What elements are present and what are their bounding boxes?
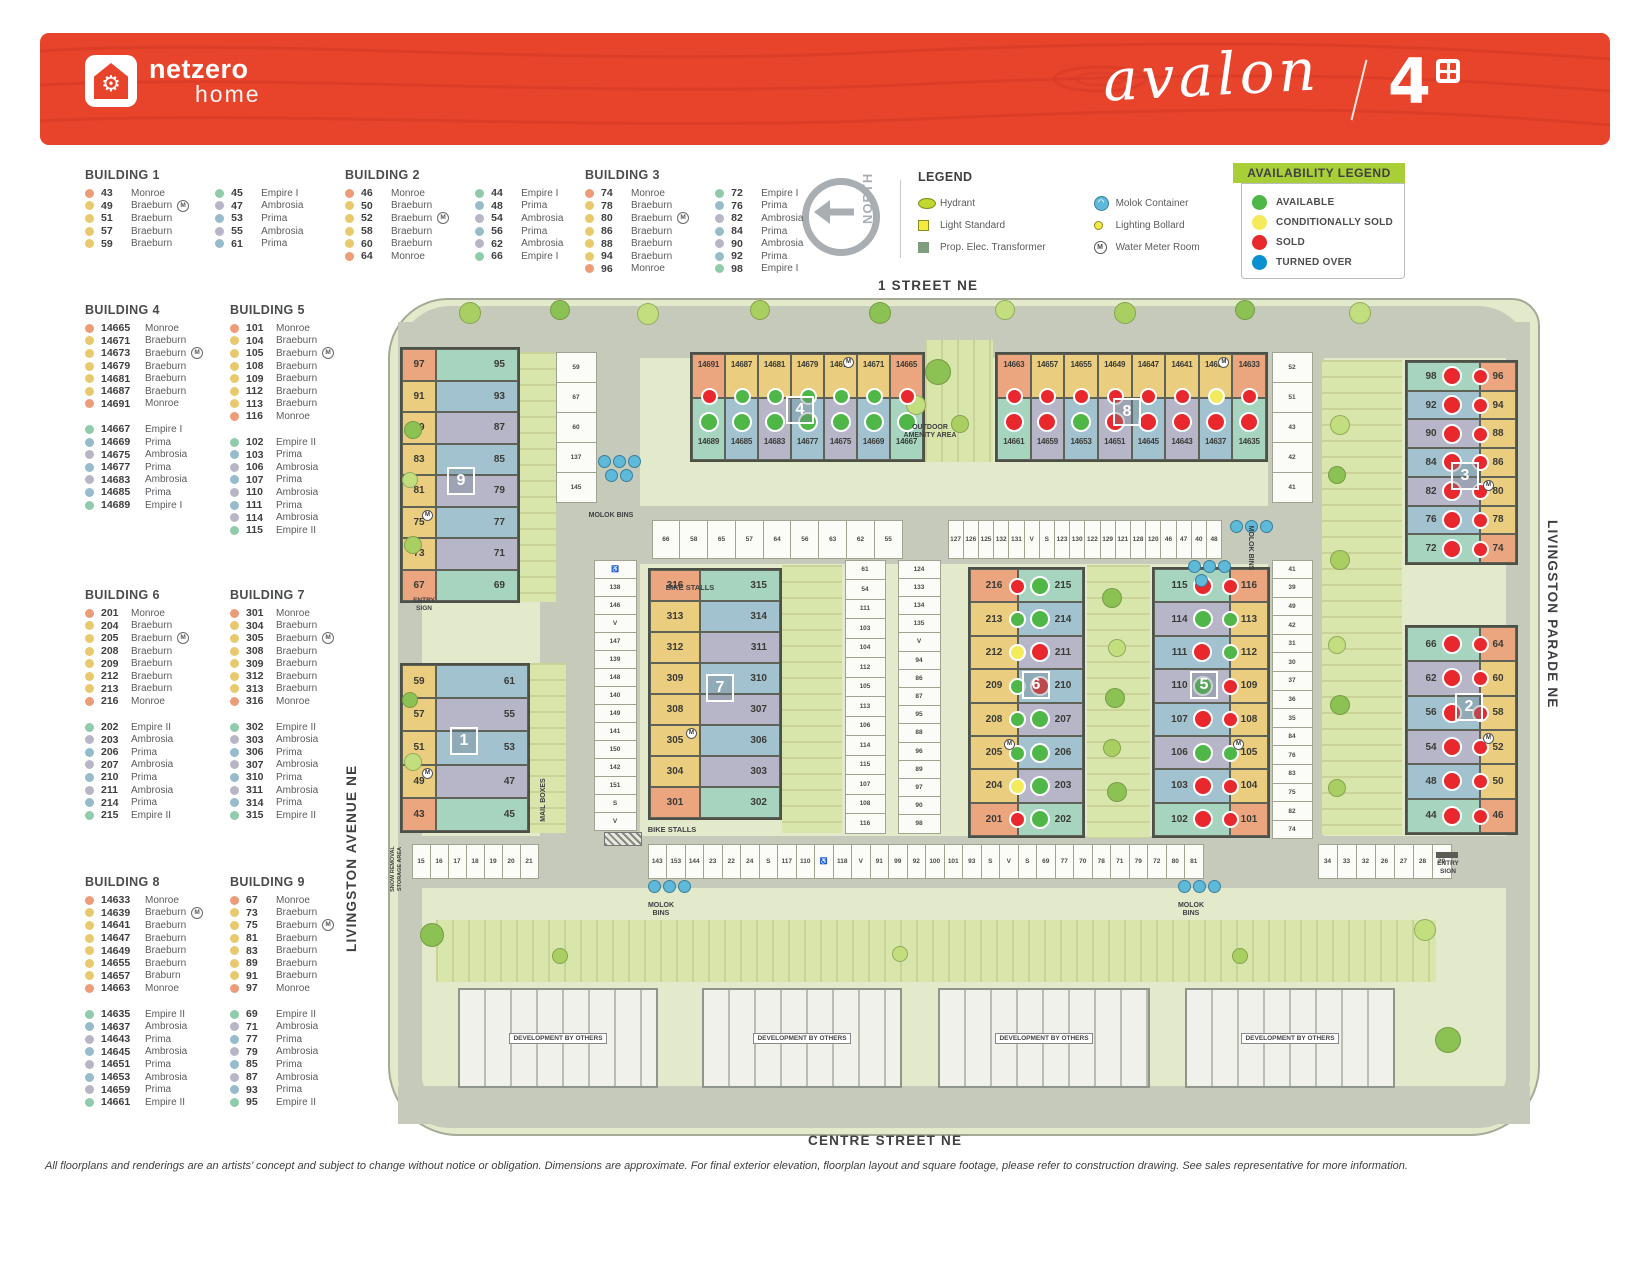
parking-stall: 43 xyxy=(1272,412,1313,443)
yard xyxy=(520,352,556,602)
parking-stall: 80 xyxy=(1166,844,1186,879)
molok-bin-icon xyxy=(1193,880,1206,893)
parking-stall: 97 xyxy=(898,778,941,797)
map-unit[interactable]: 86 xyxy=(1480,448,1516,477)
molok-bin-icon xyxy=(605,469,618,482)
map-unit[interactable]: 45 xyxy=(436,798,528,831)
parking-stall: 47 xyxy=(1176,520,1192,559)
map-unit[interactable]: 109 xyxy=(1230,669,1268,702)
parking-strip: 596760137145 xyxy=(556,352,596,502)
parking-stall: 103 xyxy=(845,618,886,639)
parking-stall: 79 xyxy=(1129,844,1149,879)
map-unit[interactable]: 201 xyxy=(970,803,1018,836)
map-unit[interactable]: 46 xyxy=(1480,799,1516,833)
status-dot xyxy=(1030,609,1050,629)
tree xyxy=(459,302,481,324)
map-unit[interactable]: 313 xyxy=(650,601,700,632)
parking-stall: 100 xyxy=(925,844,945,879)
parking-strip: 15161718192021 xyxy=(412,844,538,878)
parking-stall: 15 xyxy=(412,844,431,879)
site-plan-page: ⚙ netzero home avalon 4 NORTH LEGEND Hyd… xyxy=(0,0,1650,1275)
molok-bin-icon xyxy=(1230,520,1243,533)
map-unit[interactable]: 108 xyxy=(1230,703,1268,736)
map-unit[interactable]: 112 xyxy=(1230,636,1268,669)
parking-stall: 81 xyxy=(1184,844,1204,879)
parking-stall: 113 xyxy=(845,696,886,717)
tree xyxy=(402,472,418,488)
parking-stall: 17 xyxy=(448,844,467,879)
map-unit[interactable]: 47 xyxy=(436,765,528,798)
building-7-chip: 7 xyxy=(706,674,734,702)
map-unit[interactable]: 72 xyxy=(1407,534,1480,563)
status-dot xyxy=(1138,412,1158,432)
map-unit[interactable]: 14655 xyxy=(1064,354,1098,398)
map-unit[interactable]: 14635 xyxy=(1232,398,1266,460)
map-unit[interactable]: 14643 xyxy=(1165,398,1199,460)
status-dot xyxy=(1222,778,1239,795)
tree xyxy=(869,302,891,324)
map-unit[interactable]: 71 xyxy=(436,538,518,570)
status-dot xyxy=(767,388,784,405)
parking-stall: 116 xyxy=(845,813,886,834)
map-unit[interactable]: 62 xyxy=(1407,661,1480,695)
map-unit[interactable]: 87 xyxy=(436,412,518,444)
status-dot xyxy=(1193,776,1213,796)
status-dot xyxy=(1193,609,1213,629)
map-unit[interactable]: 212 xyxy=(970,636,1018,669)
map-unit[interactable]: 14689 xyxy=(692,398,725,460)
parking-stall: 41 xyxy=(1272,560,1313,580)
development-by-others-block: DEVELOPMENT BY OTHERS xyxy=(458,988,658,1088)
map-unit[interactable]: 52M xyxy=(1480,730,1516,764)
molok-bin-icon xyxy=(598,455,611,468)
map-label[interactable]: MOLOK BINS xyxy=(586,512,636,520)
map-unit[interactable]: 58 xyxy=(1480,696,1516,730)
status-dot xyxy=(1071,412,1091,432)
map-unit[interactable]: 111 xyxy=(1154,636,1230,669)
parking-stall: 112 xyxy=(845,657,886,678)
building-3-map: 98969294908884868280M767872743 xyxy=(1405,360,1518,565)
map-unit[interactable]: 80M xyxy=(1480,477,1516,506)
building-4-chip: 4 xyxy=(786,396,814,424)
tree xyxy=(892,946,908,962)
yard xyxy=(436,920,1436,982)
parking-stall: 144 xyxy=(685,844,705,879)
status-dot xyxy=(1442,634,1462,654)
status-dot xyxy=(1172,412,1192,432)
map-unit[interactable]: 98 xyxy=(1407,362,1480,391)
parking-stall: 134 xyxy=(898,596,941,615)
parking-stall: 126 xyxy=(963,520,979,559)
map-unit[interactable]: 107 xyxy=(1154,703,1230,736)
parking-stall: 76 xyxy=(1272,745,1313,765)
entry-sign-marker xyxy=(1436,852,1458,858)
status-dot xyxy=(1030,709,1050,729)
status-dot xyxy=(1037,412,1057,432)
parking-stall: ♿ xyxy=(594,560,637,579)
map-unit[interactable]: 102 xyxy=(1154,803,1230,836)
status-dot xyxy=(1006,388,1023,405)
map-unit[interactable]: 213 xyxy=(970,602,1018,635)
tree xyxy=(402,692,418,708)
status-dot xyxy=(833,388,850,405)
status-dot xyxy=(899,388,916,405)
parking-stall: 133 xyxy=(898,578,941,597)
parking-stall: 22 xyxy=(722,844,742,879)
map-unit[interactable]: 14649 xyxy=(1098,354,1132,398)
map-unit[interactable]: 308 xyxy=(650,694,700,725)
map-unit[interactable]: 305M xyxy=(650,725,700,756)
status-dot xyxy=(1472,426,1489,443)
molok-bin-icon xyxy=(1178,880,1191,893)
map-unit[interactable]: 66 xyxy=(1407,627,1480,661)
map-unit[interactable]: 14657 xyxy=(1031,354,1065,398)
molok-bin-icon xyxy=(1208,880,1221,893)
parking-stall: 59 xyxy=(556,352,597,383)
parking-stall: 49 xyxy=(1272,597,1313,617)
parking-stall: 60 xyxy=(556,412,597,443)
map-label[interactable]: MOLOK BINS xyxy=(640,902,682,919)
map-unit[interactable]: 48 xyxy=(1407,764,1480,798)
map-label[interactable]: BIKE STALLS xyxy=(642,825,702,834)
map-unit[interactable]: 14691 xyxy=(692,354,725,398)
status-dot xyxy=(1442,539,1462,559)
map-unit[interactable]: 105M xyxy=(1230,736,1268,769)
map-unit[interactable]: 60 xyxy=(1480,661,1516,695)
map-unit[interactable]: 302 xyxy=(700,787,780,818)
status-dot xyxy=(1174,388,1191,405)
status-dot xyxy=(1472,670,1489,687)
water-meter-marker: M xyxy=(422,510,433,521)
parking-stall: 117 xyxy=(777,844,797,879)
map-label[interactable]: ENTRY SIGN xyxy=(1430,860,1466,876)
parking-stall: 71 xyxy=(1110,844,1130,879)
parking-stall: 138 xyxy=(594,578,637,597)
map-unit[interactable]: 215 xyxy=(1018,569,1083,602)
map-unit[interactable]: 101 xyxy=(1230,803,1268,836)
map-unit[interactable]: 14663 xyxy=(997,354,1031,398)
parking-stall: 92 xyxy=(907,844,927,879)
status-dot xyxy=(1073,388,1090,405)
map-unit[interactable]: 96 xyxy=(1480,362,1516,391)
status-dot xyxy=(1442,510,1462,530)
status-dot xyxy=(701,388,718,405)
map-unit[interactable]: 90 xyxy=(1407,419,1480,448)
parking-stall: 124 xyxy=(898,560,941,579)
map-unit[interactable]: 203 xyxy=(1018,769,1083,802)
map-unit[interactable]: 311 xyxy=(700,632,780,663)
water-meter-marker: M xyxy=(843,357,854,368)
building-8-map: 1466314661146571465914655146531464914651… xyxy=(995,352,1268,462)
tree xyxy=(1349,302,1371,324)
parking-stall: 56 xyxy=(790,520,819,559)
parking-stall: V xyxy=(1024,520,1040,559)
molok-bin-icon xyxy=(1203,560,1216,573)
parking-stall: 122 xyxy=(1084,520,1100,559)
parking-stall: 99 xyxy=(888,844,908,879)
map-unit[interactable]: 14633 xyxy=(1232,354,1266,398)
tree xyxy=(1435,1027,1461,1053)
parking-stall: 118 xyxy=(833,844,853,879)
map-unit[interactable]: 61 xyxy=(436,665,528,698)
status-dot xyxy=(1192,642,1212,662)
parking-stall: 69 xyxy=(1036,844,1056,879)
tree xyxy=(1328,779,1346,797)
map-unit[interactable]: 77 xyxy=(436,507,518,539)
map-unit[interactable]: 14647 xyxy=(1132,354,1166,398)
map-unit[interactable]: 216 xyxy=(970,569,1018,602)
parking-stall: 62 xyxy=(846,520,875,559)
map-unit[interactable]: 14673M xyxy=(824,354,857,398)
status-dot xyxy=(1472,368,1489,385)
street-livingston-parade-ne: LIVINGSTON PARADE NE xyxy=(1545,520,1560,709)
status-dot xyxy=(1222,678,1239,695)
status-dot xyxy=(1222,644,1239,661)
status-dot xyxy=(1442,366,1462,386)
map-unit[interactable]: 14639M xyxy=(1199,354,1233,398)
map-unit[interactable]: 214 xyxy=(1018,602,1083,635)
parking-stall: 91 xyxy=(870,844,890,879)
map-unit[interactable]: 93 xyxy=(436,381,518,413)
parking-stall: 140 xyxy=(594,686,637,705)
parking-stall: 83 xyxy=(1272,764,1313,784)
parking-stall: 65 xyxy=(707,520,736,559)
parking-stall: 37 xyxy=(1272,671,1313,691)
map-unit[interactable]: 205M xyxy=(970,736,1018,769)
status-dot xyxy=(831,412,851,432)
development-by-others-label: DEVELOPMENT BY OTHERS xyxy=(509,1033,606,1044)
parking-stall: 114 xyxy=(845,735,886,756)
parking-strip: 127126125132131VS12313012212912112812046… xyxy=(948,520,1222,558)
parking-stall: 153 xyxy=(666,844,686,879)
map-unit[interactable]: 209 xyxy=(970,669,1018,702)
molok-bin-icon xyxy=(628,455,641,468)
map-unit[interactable]: 83 xyxy=(402,444,436,476)
parking-stall: 64 xyxy=(763,520,792,559)
map-unit[interactable]: 44 xyxy=(1407,799,1480,833)
parking-strip: 6154111103104112105113106114115107108116 xyxy=(845,560,885,833)
tree xyxy=(1330,415,1350,435)
map-unit[interactable]: 14653 xyxy=(1064,398,1098,460)
map-unit[interactable]: 113 xyxy=(1230,602,1268,635)
map-unit[interactable]: 202 xyxy=(1018,803,1083,836)
parking-stall: 137 xyxy=(556,442,597,473)
map-unit[interactable]: 114 xyxy=(1154,602,1230,635)
map-unit[interactable]: 304 xyxy=(650,756,700,787)
parking-stall: 20 xyxy=(502,844,521,879)
map-unit[interactable]: 14637 xyxy=(1199,398,1233,460)
map-unit[interactable]: 75M xyxy=(402,507,436,539)
tree xyxy=(1330,695,1350,715)
tree xyxy=(637,303,659,325)
parking-stall: 129 xyxy=(1100,520,1116,559)
map-unit[interactable]: 97 xyxy=(402,349,436,381)
map-label[interactable]: MOLOK BINS xyxy=(1246,518,1254,578)
map-unit[interactable]: 306 xyxy=(700,725,780,756)
map-unit[interactable]: 43 xyxy=(402,798,436,831)
parking-stall: 57 xyxy=(735,520,764,559)
parking-stall: 72 xyxy=(1147,844,1167,879)
tree xyxy=(1235,300,1255,320)
map-unit[interactable]: 204 xyxy=(970,769,1018,802)
map-unit[interactable]: 14659 xyxy=(1031,398,1065,460)
water-meter-marker: M xyxy=(686,728,697,739)
map-label[interactable]: OUTDOOR AMENITY AREA xyxy=(900,424,960,441)
map-unit[interactable]: 115 xyxy=(1154,569,1230,602)
tree xyxy=(552,948,568,964)
status-dot xyxy=(1442,668,1462,688)
tree xyxy=(1102,588,1122,608)
parking-stall: 55 xyxy=(874,520,903,559)
map-label[interactable]: MOLOK BINS xyxy=(1170,902,1212,919)
map-unit[interactable]: 94 xyxy=(1480,391,1516,420)
parking-stall: 42 xyxy=(1272,442,1313,473)
map-unit[interactable]: 50 xyxy=(1480,764,1516,798)
map-unit[interactable]: 309 xyxy=(650,663,700,694)
map-unit[interactable]: 76 xyxy=(1407,506,1480,535)
parking-stall: 19 xyxy=(484,844,503,879)
molok-bin-icon xyxy=(620,469,633,482)
parking-stall: 104 xyxy=(845,638,886,659)
map-unit[interactable]: 14671 xyxy=(857,354,890,398)
tree xyxy=(1330,550,1350,570)
map-unit[interactable]: 103 xyxy=(1154,769,1230,802)
status-dot xyxy=(1239,412,1259,432)
map-unit[interactable]: 104 xyxy=(1230,769,1268,802)
map-unit[interactable]: 14681 xyxy=(758,354,791,398)
status-dot xyxy=(1442,737,1462,757)
status-dot xyxy=(864,412,884,432)
map-unit[interactable]: 14685 xyxy=(725,398,758,460)
tree xyxy=(420,923,444,947)
status-dot xyxy=(1472,773,1489,790)
map-unit[interactable]: 106 xyxy=(1154,736,1230,769)
parking-stall: 94 xyxy=(898,651,941,670)
tree xyxy=(1103,739,1121,757)
parking-stall: 21 xyxy=(520,844,539,879)
status-dot xyxy=(1442,806,1462,826)
parking-stall: 107 xyxy=(845,774,886,795)
map-unit[interactable]: 92 xyxy=(1407,391,1480,420)
status-dot xyxy=(1009,578,1026,595)
tree xyxy=(404,536,422,554)
map-unit[interactable]: 211 xyxy=(1018,636,1083,669)
map-unit[interactable]: 74 xyxy=(1480,534,1516,563)
map-unit[interactable]: 14675 xyxy=(824,398,857,460)
map-unit[interactable]: 78 xyxy=(1480,506,1516,535)
building-2-chip: 2 xyxy=(1455,693,1483,721)
map-unit[interactable]: 14665 xyxy=(890,354,923,398)
parking-stall: 67 xyxy=(556,382,597,413)
map-unit[interactable]: 14641 xyxy=(1165,354,1199,398)
water-meter-marker: M xyxy=(1483,480,1494,491)
status-dot xyxy=(699,412,719,432)
map-unit[interactable]: 14669 xyxy=(857,398,890,460)
building-6-chip: 6 xyxy=(1022,671,1050,699)
parking-stall: 41 xyxy=(1272,472,1313,503)
tree xyxy=(1328,636,1346,654)
parking-stall: 98 xyxy=(898,814,941,833)
map-unit[interactable]: 91 xyxy=(402,381,436,413)
tree xyxy=(925,359,951,385)
map-label[interactable]: ENTRY SIGN xyxy=(406,597,442,613)
status-dot xyxy=(1472,541,1489,558)
development-by-others-block: DEVELOPMENT BY OTHERS xyxy=(1185,988,1395,1088)
parking-stall: 121 xyxy=(1115,520,1131,559)
parking-stall: V xyxy=(999,844,1019,879)
parking-stall: 46 xyxy=(1160,520,1176,559)
status-dot xyxy=(1442,424,1462,444)
map-unit[interactable]: 14687 xyxy=(725,354,758,398)
map-unit[interactable]: 208 xyxy=(970,703,1018,736)
parking-stall: 36 xyxy=(1272,690,1313,710)
street-centre-street-ne: CENTRE STREET NE xyxy=(808,1133,962,1148)
tree xyxy=(550,300,570,320)
tree xyxy=(1108,639,1126,657)
parking-stall: 150 xyxy=(594,740,637,759)
parking-stall: 108 xyxy=(845,794,886,815)
map-unit[interactable]: 207 xyxy=(1018,703,1083,736)
parking-stall: 74 xyxy=(1272,820,1313,840)
parking-stall: 26 xyxy=(1375,844,1395,879)
map-unit[interactable]: 14679 xyxy=(791,354,824,398)
map-unit[interactable]: 206 xyxy=(1018,736,1083,769)
map-unit[interactable]: 49M xyxy=(402,765,436,798)
parking-stall: 123 xyxy=(1054,520,1070,559)
tree xyxy=(1105,688,1125,708)
tree xyxy=(404,753,422,771)
parking-strip: 124133134135V94868795889689979098 xyxy=(898,560,940,833)
parking-stall: 63 xyxy=(818,520,847,559)
map-label[interactable]: SNOW REMOVAL STORAGE AREA xyxy=(390,842,403,896)
parking-stall: 143 xyxy=(648,844,668,879)
status-dot xyxy=(866,388,883,405)
status-dot xyxy=(1030,576,1050,596)
map-unit[interactable]: 303 xyxy=(700,756,780,787)
parking-stall: S xyxy=(981,844,1001,879)
building-7-map: 316315313314312311309310308307305M306304… xyxy=(648,568,782,820)
map-unit[interactable]: 312 xyxy=(650,632,700,663)
parking-stall: 128 xyxy=(1130,520,1146,559)
parking-stall: 135 xyxy=(898,614,941,633)
map-unit[interactable]: 14661 xyxy=(997,398,1031,460)
molok-bin-icon xyxy=(678,880,691,893)
development-by-others-block: DEVELOPMENT BY OTHERS xyxy=(702,988,902,1088)
parking-stall: 141 xyxy=(594,722,637,741)
map-unit[interactable]: 54 xyxy=(1407,730,1480,764)
building-9-chip: 9 xyxy=(447,467,475,495)
status-dot xyxy=(1222,611,1239,628)
map-unit[interactable]: 64 xyxy=(1480,627,1516,661)
tree xyxy=(995,300,1015,320)
parking-strip: 413949423130373635847683758274 xyxy=(1272,560,1312,839)
parking-stall: 89 xyxy=(898,760,941,779)
parking-stall: 40 xyxy=(1191,520,1207,559)
parking-strip: 665865576456636255 xyxy=(652,520,902,558)
status-dot xyxy=(1442,395,1462,415)
status-dot xyxy=(1193,709,1213,729)
map-unit[interactable]: 69 xyxy=(436,570,518,602)
map-label[interactable]: MAIL BOXES xyxy=(540,774,548,826)
status-dot xyxy=(732,412,752,432)
development-by-others-label: DEVELOPMENT BY OTHERS xyxy=(1241,1033,1338,1044)
map-unit[interactable]: 95 xyxy=(436,349,518,381)
map-unit[interactable]: 301 xyxy=(650,787,700,818)
map-label[interactable]: BIKE STALLS xyxy=(660,583,720,592)
map-unit[interactable]: 88 xyxy=(1480,419,1516,448)
tree xyxy=(1414,919,1436,941)
map-unit[interactable]: 314 xyxy=(700,601,780,632)
